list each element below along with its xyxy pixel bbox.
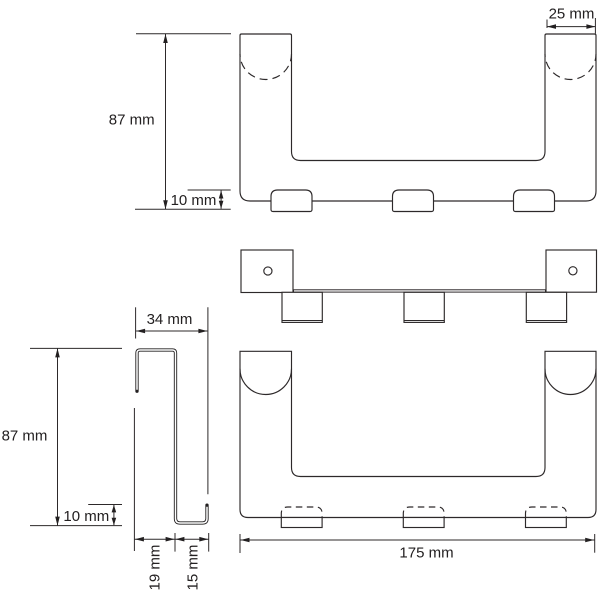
svg-text:10 mm: 10 mm: [63, 508, 109, 525]
svg-text:25 mm: 25 mm: [549, 5, 595, 22]
svg-text:87 mm: 87 mm: [2, 428, 48, 445]
svg-text:34 mm: 34 mm: [147, 311, 193, 328]
svg-text:19 mm: 19 mm: [147, 545, 164, 591]
svg-text:10 mm: 10 mm: [171, 192, 217, 209]
svg-text:15 mm: 15 mm: [185, 545, 202, 591]
svg-text:175 mm: 175 mm: [399, 545, 453, 562]
svg-text:87 mm: 87 mm: [109, 111, 155, 128]
